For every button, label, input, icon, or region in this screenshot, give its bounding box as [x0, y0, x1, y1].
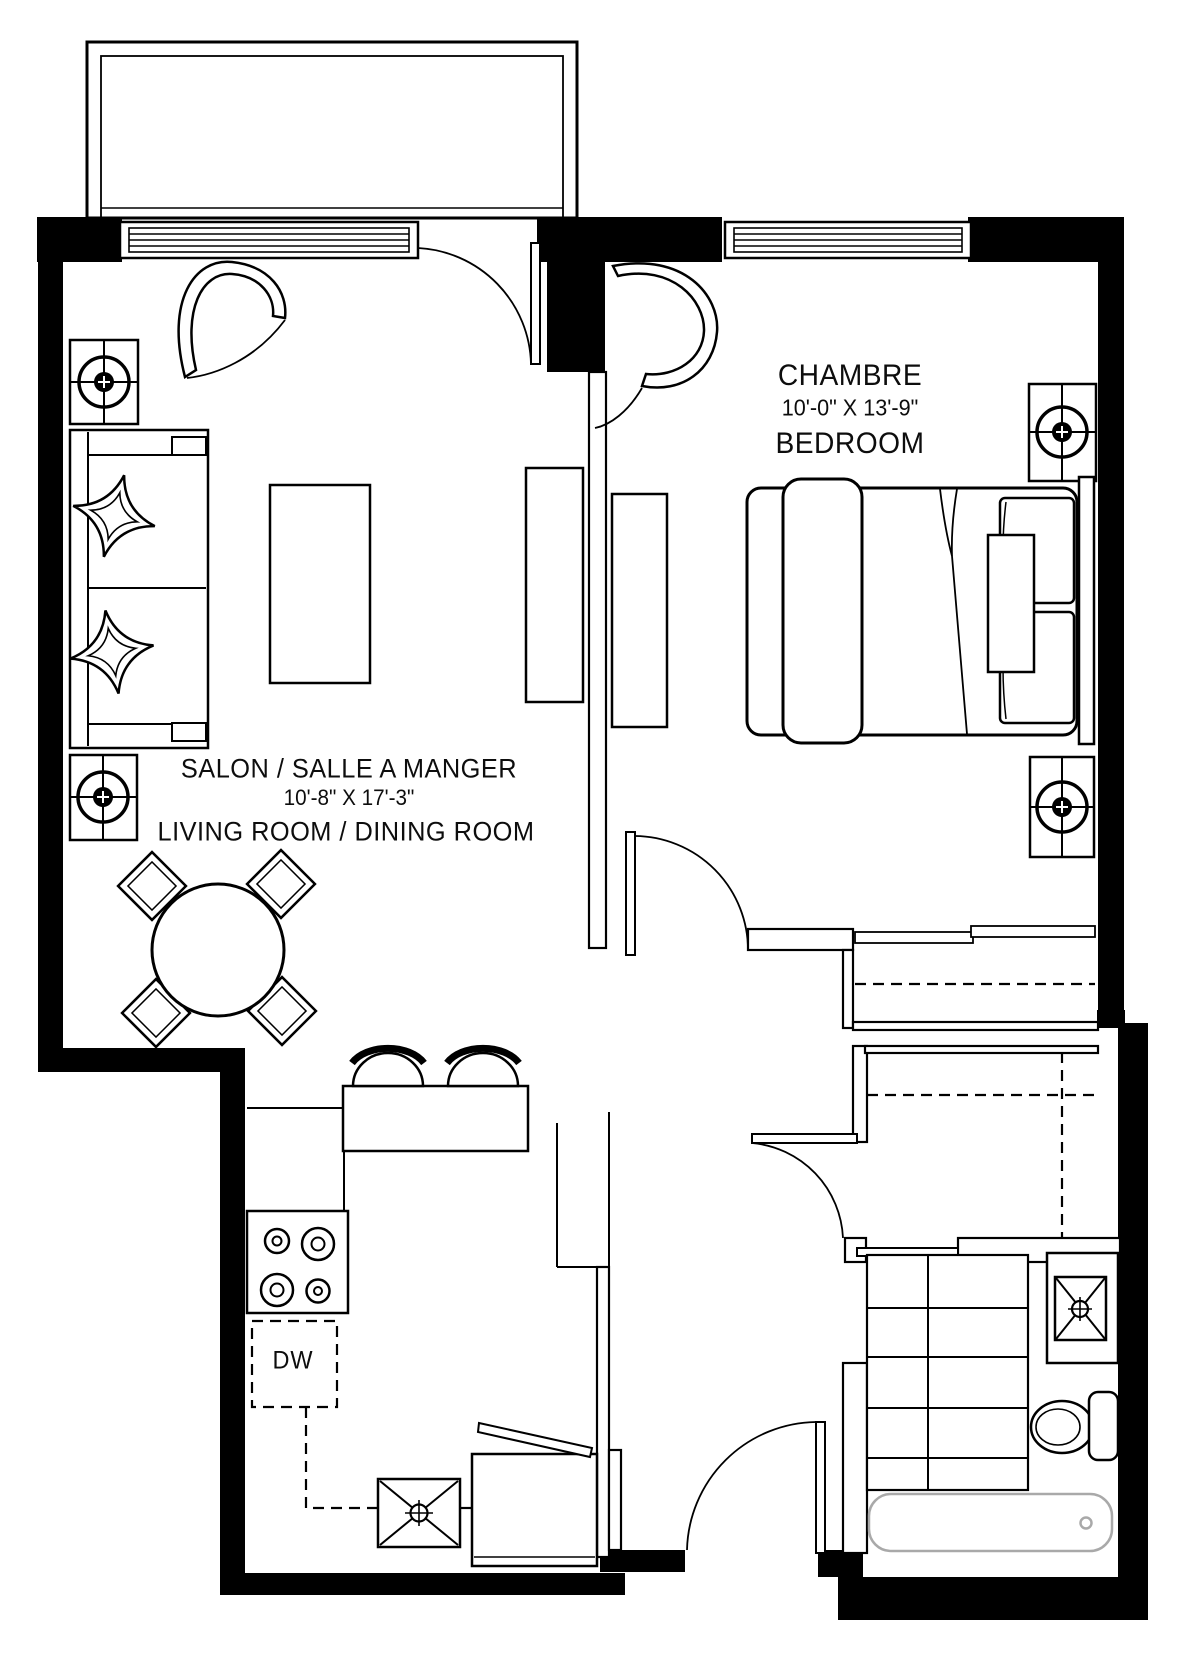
- counter-dashed-edge: [306, 1407, 378, 1508]
- tv-cabinet: [526, 468, 583, 702]
- label-dishwasher: DW: [272, 1349, 313, 1374]
- entry-closet-door: [752, 1134, 857, 1238]
- bar-stool: [352, 1048, 424, 1086]
- bathroom: [867, 1253, 1118, 1551]
- column-marker: [1030, 757, 1094, 857]
- curtain-bedroom: [595, 263, 717, 428]
- refrigerator: [472, 1423, 597, 1566]
- round-dining-table: [152, 884, 284, 1016]
- tile-floor: [867, 1255, 1028, 1490]
- wall-closet-bottom: [853, 1022, 1098, 1030]
- balcony: [87, 42, 577, 218]
- label-living-dining-subtitle: LIVING ROOM / DINING ROOM: [158, 819, 535, 846]
- label-living-dining-title: SALON / SALLE A MANGER: [181, 756, 517, 783]
- vanity-sink: [1047, 1253, 1118, 1363]
- kitchen: [247, 1048, 597, 1566]
- bathtub: [869, 1494, 1112, 1551]
- wall-entry-closet-top: [865, 1046, 1098, 1053]
- column-marker: [1029, 384, 1096, 481]
- wall-bedroom-south: [748, 929, 853, 950]
- wall-living-bedroom: [589, 372, 606, 948]
- entry-closet: [867, 1052, 1098, 1238]
- label-bedroom-subtitle: BEDROOM: [775, 429, 924, 459]
- column-marker: [70, 755, 137, 840]
- balcony-door: [418, 243, 540, 364]
- sliding-door-panel: [855, 932, 973, 943]
- cooktop: [247, 1211, 348, 1313]
- floor-plan: SALON / SALLE A MANGER 10'-8" X 17'-3" L…: [0, 0, 1184, 1667]
- label-bedroom-title: CHAMBRE: [778, 361, 922, 391]
- fridge-door-open: [478, 1423, 592, 1457]
- window-bedroom: [725, 222, 971, 258]
- sliding-door-panel: [971, 926, 1095, 937]
- sofa: [70, 430, 208, 748]
- bed-folded-blanket: [783, 479, 862, 743]
- curtain-living-room: [179, 262, 286, 378]
- wall-bathroom-left: [843, 1363, 867, 1553]
- column-marker: [70, 340, 138, 424]
- kitchen-sink: [378, 1479, 460, 1547]
- peninsula-counter: [343, 1086, 528, 1151]
- coffee-table: [270, 485, 370, 683]
- window-living-room: [120, 222, 418, 258]
- label-bedroom-dimensions: 10'-0" X 13'-9": [782, 397, 919, 420]
- bedroom-door: [626, 832, 748, 955]
- label-living-dining-dimensions: 10'-8" X 17'-3": [284, 787, 415, 809]
- double-bed: [747, 477, 1094, 744]
- toilet: [1031, 1392, 1118, 1460]
- bedroom-closet: [855, 926, 1095, 984]
- entry-door: [687, 1422, 825, 1553]
- wall-kitchen-east: [597, 1267, 609, 1557]
- dresser: [612, 494, 667, 727]
- dining-set: [118, 850, 316, 1047]
- bar-stool: [447, 1048, 519, 1086]
- bed-cushion: [988, 535, 1034, 672]
- headboard: [1079, 477, 1094, 744]
